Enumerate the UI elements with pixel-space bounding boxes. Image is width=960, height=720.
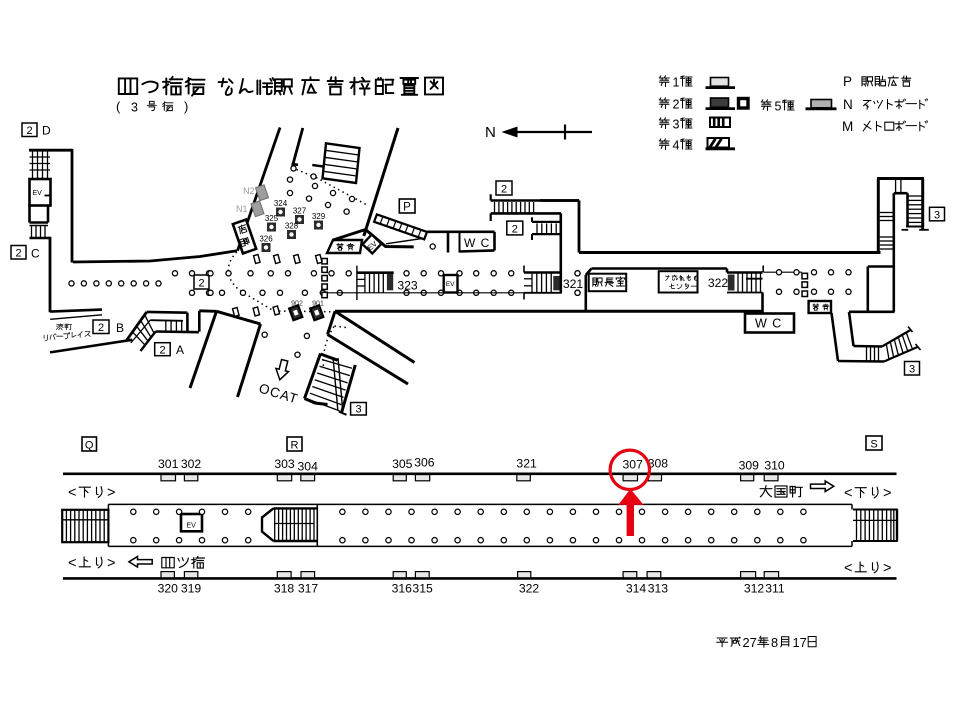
svg-text:A: A xyxy=(176,343,184,357)
svg-text:3: 3 xyxy=(934,209,940,221)
svg-text:2: 2 xyxy=(15,248,21,260)
svg-text:W C: W C xyxy=(755,317,782,331)
svg-text:3: 3 xyxy=(909,364,915,376)
svg-text:17: 17 xyxy=(793,635,807,650)
svg-text:2: 2 xyxy=(98,322,104,334)
svg-text:322: 322 xyxy=(708,276,729,290)
svg-text:>: > xyxy=(883,561,891,577)
svg-text:<: < xyxy=(844,561,852,577)
svg-text:27: 27 xyxy=(743,635,757,650)
svg-text:5: 5 xyxy=(775,100,782,114)
svg-text:309: 309 xyxy=(739,458,760,472)
svg-text:): ) xyxy=(184,99,188,114)
svg-text:R: R xyxy=(291,440,299,452)
svg-text:312: 312 xyxy=(744,582,765,596)
svg-text:302: 302 xyxy=(181,457,202,471)
svg-text:325: 325 xyxy=(265,214,279,223)
svg-text:326: 326 xyxy=(259,235,273,244)
svg-text:4: 4 xyxy=(673,139,680,153)
svg-text:<: < xyxy=(68,485,76,501)
svg-text:2: 2 xyxy=(159,344,165,356)
svg-text:P: P xyxy=(403,202,411,214)
svg-text:1: 1 xyxy=(673,76,680,90)
svg-text:W C: W C xyxy=(464,236,490,250)
svg-text:B: B xyxy=(116,321,124,335)
svg-text:307: 307 xyxy=(623,457,644,471)
svg-text:M: M xyxy=(842,119,853,134)
svg-text:P: P xyxy=(843,74,852,89)
svg-text:303: 303 xyxy=(274,457,295,471)
svg-text:316: 316 xyxy=(392,582,413,596)
svg-text:328: 328 xyxy=(285,222,299,231)
svg-text:3: 3 xyxy=(673,118,680,132)
svg-text:315: 315 xyxy=(412,582,433,596)
svg-text:304: 304 xyxy=(298,460,319,474)
svg-text:321: 321 xyxy=(563,277,584,291)
svg-text:310: 310 xyxy=(764,458,785,472)
svg-text:8: 8 xyxy=(771,635,778,650)
svg-text:2: 2 xyxy=(512,224,518,236)
svg-text:320: 320 xyxy=(158,582,179,596)
svg-text:301: 301 xyxy=(158,457,179,471)
svg-text:313: 313 xyxy=(648,582,669,596)
svg-text:2: 2 xyxy=(501,184,507,196)
svg-text:2: 2 xyxy=(673,98,680,112)
svg-text:>: > xyxy=(883,486,891,502)
svg-text:317: 317 xyxy=(298,582,319,596)
svg-text:>: > xyxy=(107,556,115,572)
svg-text:322: 322 xyxy=(519,582,540,596)
svg-text:321: 321 xyxy=(516,457,537,471)
svg-text:N: N xyxy=(485,124,496,141)
svg-text:Q: Q xyxy=(85,440,94,452)
svg-text:311: 311 xyxy=(765,582,785,596)
svg-text:3: 3 xyxy=(131,101,138,115)
svg-text:329: 329 xyxy=(312,212,326,221)
svg-text:C: C xyxy=(31,247,40,261)
svg-text:S: S xyxy=(870,439,877,451)
svg-text:EV: EV xyxy=(33,190,43,197)
svg-text:305: 305 xyxy=(392,457,413,471)
svg-text:319: 319 xyxy=(181,582,202,596)
svg-text:3: 3 xyxy=(355,404,361,416)
svg-text:318: 318 xyxy=(274,582,295,596)
svg-text:323: 323 xyxy=(397,279,418,293)
svg-text:314: 314 xyxy=(626,582,647,596)
svg-text:EV: EV xyxy=(187,523,197,530)
svg-text:N: N xyxy=(843,97,853,112)
svg-text:>: > xyxy=(107,485,115,501)
svg-text:EV: EV xyxy=(446,281,455,288)
svg-text:N2: N2 xyxy=(243,186,255,196)
svg-text:(: ( xyxy=(116,99,121,114)
svg-text:<: < xyxy=(844,486,852,502)
svg-text:327: 327 xyxy=(293,207,307,216)
svg-text:2: 2 xyxy=(198,278,204,290)
svg-text:324: 324 xyxy=(274,199,288,208)
svg-text:N1: N1 xyxy=(236,204,248,214)
svg-text:<: < xyxy=(68,556,76,572)
svg-text:D: D xyxy=(42,124,51,138)
svg-text:306: 306 xyxy=(414,456,435,470)
svg-text:2: 2 xyxy=(26,125,32,137)
